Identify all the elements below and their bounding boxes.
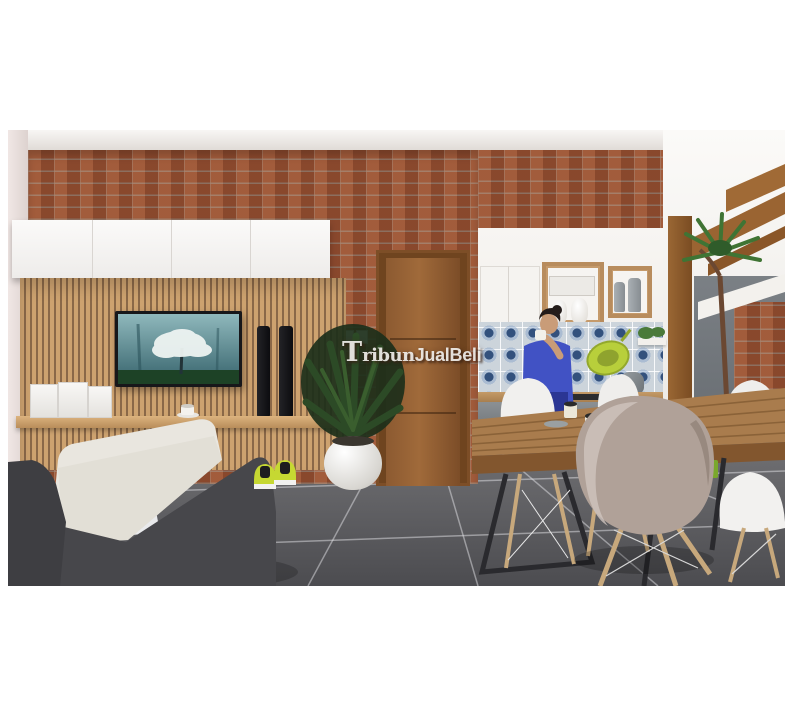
shelf-cup bbox=[177, 404, 199, 418]
dining-chair-front bbox=[574, 396, 714, 586]
page: { "page": { "background": "#ffffff" }, "… bbox=[0, 0, 800, 720]
pergola-beams bbox=[692, 164, 785, 276]
watermark-initial: T bbox=[342, 337, 362, 368]
courtyard-ledge bbox=[698, 274, 785, 320]
sofa bbox=[8, 419, 298, 586]
shelf-plants bbox=[638, 327, 665, 339]
watermark-text-sans: JualBeli bbox=[415, 345, 482, 365]
planter-soil bbox=[332, 436, 374, 446]
interior-render-photo: TribunJualBeli bbox=[8, 130, 785, 586]
watermark-text-serif: ribun bbox=[362, 345, 415, 366]
hanging-colander bbox=[582, 330, 642, 380]
watermark: TribunJualBeli bbox=[342, 342, 492, 372]
dining-chair-right bbox=[720, 472, 785, 582]
